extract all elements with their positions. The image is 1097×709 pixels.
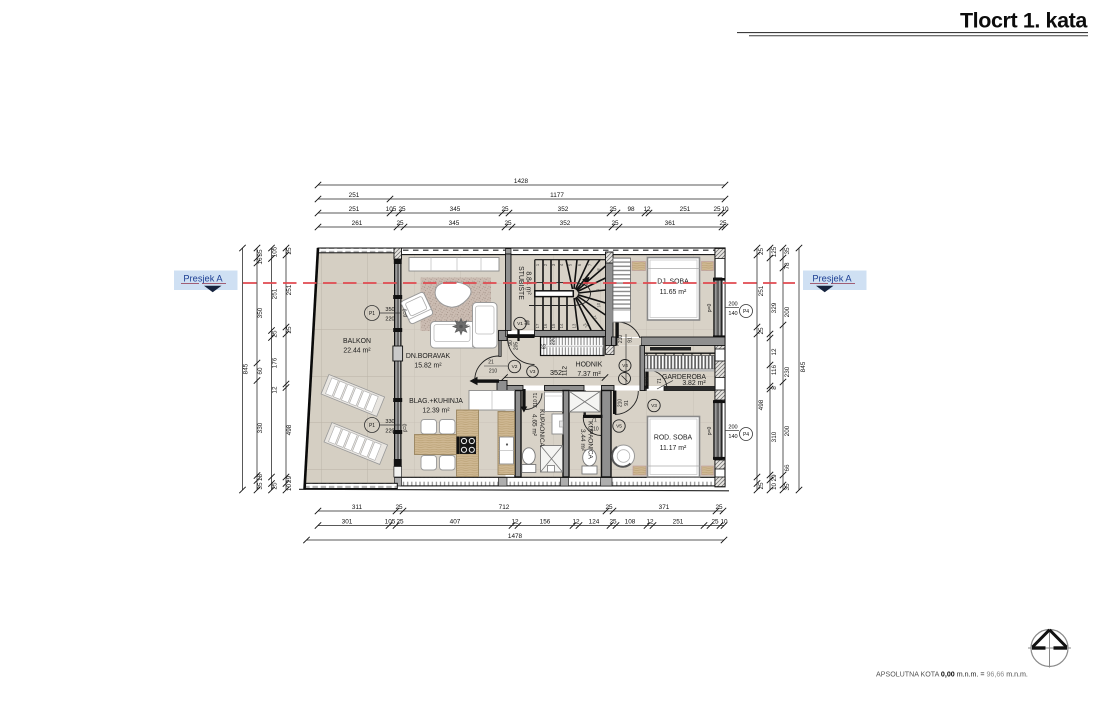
svg-text:108: 108 — [625, 519, 636, 526]
svg-text:p=0: p=0 — [707, 304, 713, 313]
svg-text:330: 330 — [385, 419, 394, 425]
svg-text:DN.BORAVAK: DN.BORAVAK — [406, 353, 451, 360]
svg-text:25: 25 — [395, 504, 403, 511]
svg-text:10: 10 — [721, 206, 729, 213]
svg-text:15.82 m²: 15.82 m² — [414, 363, 442, 370]
svg-text:25: 25 — [504, 220, 512, 227]
svg-text:352: 352 — [560, 220, 571, 227]
svg-text:17: 17 — [535, 323, 540, 328]
svg-text:205: 205 — [514, 342, 520, 351]
svg-text:25: 25 — [711, 519, 719, 526]
svg-text:16: 16 — [525, 320, 531, 326]
svg-text:125: 125 — [771, 246, 778, 257]
svg-text:200: 200 — [728, 425, 737, 431]
svg-text:12.39 m²: 12.39 m² — [422, 408, 450, 415]
svg-text:66: 66 — [784, 464, 791, 472]
svg-text:12: 12 — [572, 519, 580, 526]
svg-text:251: 251 — [286, 284, 293, 295]
svg-text:25: 25 — [396, 220, 404, 227]
svg-text:25: 25 — [605, 504, 613, 511]
svg-text:16: 16 — [543, 323, 548, 328]
svg-text:65: 65 — [542, 344, 548, 350]
svg-text:V1: V1 — [517, 321, 523, 327]
svg-text:p=0: p=0 — [403, 309, 409, 318]
svg-text:Presjek A: Presjek A — [183, 274, 223, 284]
svg-text:140: 140 — [728, 311, 737, 317]
svg-text:29: 29 — [771, 474, 778, 482]
svg-text:210: 210 — [618, 335, 624, 344]
svg-text:25: 25 — [758, 327, 765, 335]
svg-text:V4: V4 — [622, 363, 628, 369]
svg-text:HODNIK: HODNIK — [576, 362, 603, 369]
svg-text:11.17 m²: 11.17 m² — [660, 445, 687, 452]
svg-text:350: 350 — [385, 307, 394, 313]
svg-text:29: 29 — [286, 476, 293, 484]
svg-text:352: 352 — [550, 368, 562, 377]
svg-text:25: 25 — [609, 206, 617, 213]
svg-text:25: 25 — [272, 482, 279, 490]
svg-text:P4: P4 — [743, 432, 749, 438]
svg-text:BLAG.+KUHINJA: BLAG.+KUHINJA — [409, 398, 463, 405]
svg-text:10: 10 — [286, 484, 293, 492]
svg-text:230: 230 — [784, 366, 791, 377]
svg-text:498: 498 — [286, 424, 293, 435]
svg-text:200: 200 — [784, 306, 791, 317]
svg-text:p=0: p=0 — [707, 427, 713, 436]
svg-text:V3: V3 — [651, 403, 657, 409]
svg-text:21: 21 — [488, 360, 494, 366]
svg-text:35: 35 — [257, 249, 264, 257]
svg-text:25: 25 — [501, 206, 509, 213]
svg-text:116: 116 — [771, 364, 778, 375]
svg-text:APSOLUTNA KOTA 0,00 m.n.m. = 9: APSOLUTNA KOTA 0,00 m.n.m. = 96,66 m.n.m… — [876, 671, 1028, 679]
svg-text:361: 361 — [665, 220, 676, 227]
svg-text:12: 12 — [771, 348, 778, 356]
svg-text:78: 78 — [784, 262, 791, 270]
svg-text:156: 156 — [540, 519, 551, 526]
svg-text:301: 301 — [342, 519, 353, 526]
svg-text:p=0: p=0 — [403, 424, 409, 433]
svg-text:845: 845 — [800, 361, 807, 372]
svg-text:KUPAONICA: KUPAONICA — [587, 421, 594, 459]
svg-text:25: 25 — [286, 247, 293, 255]
svg-text:1478: 1478 — [508, 533, 523, 540]
svg-text:210: 210 — [618, 399, 624, 408]
svg-text:1428: 1428 — [514, 178, 529, 185]
svg-text:345: 345 — [449, 220, 460, 227]
svg-text:25: 25 — [611, 220, 619, 227]
svg-text:12: 12 — [643, 206, 651, 213]
svg-text:25: 25 — [713, 206, 721, 213]
svg-text:251: 251 — [673, 519, 684, 526]
svg-text:112: 112 — [562, 366, 569, 376]
svg-text:11.65 m²: 11.65 m² — [660, 289, 687, 296]
svg-text:124: 124 — [589, 519, 600, 526]
svg-text:251: 251 — [272, 288, 279, 299]
svg-text:105: 105 — [385, 519, 396, 526]
svg-text:210: 210 — [533, 399, 539, 408]
svg-text:25: 25 — [715, 504, 723, 511]
svg-text:10: 10 — [720, 519, 728, 526]
svg-text:15: 15 — [551, 323, 556, 328]
svg-text:200: 200 — [784, 425, 791, 436]
svg-text:498: 498 — [758, 399, 765, 410]
svg-text:12: 12 — [646, 519, 654, 526]
svg-text:105: 105 — [272, 246, 279, 257]
svg-text:25: 25 — [398, 206, 406, 213]
svg-text:3.44 m²: 3.44 m² — [579, 429, 586, 452]
svg-text:13: 13 — [572, 323, 577, 328]
svg-text:310: 310 — [771, 431, 778, 442]
svg-text:16: 16 — [257, 257, 264, 265]
svg-text:71: 71 — [533, 393, 539, 399]
svg-text:Presjek A: Presjek A — [812, 274, 852, 284]
svg-text:210: 210 — [644, 377, 650, 386]
svg-text:350: 350 — [257, 307, 264, 318]
svg-text:12: 12 — [511, 519, 519, 526]
svg-text:98: 98 — [627, 206, 635, 213]
svg-text:25: 25 — [396, 519, 404, 526]
svg-text:22.44 m²: 22.44 m² — [343, 348, 371, 355]
svg-text:845: 845 — [243, 363, 250, 374]
svg-text:12: 12 — [272, 386, 279, 394]
svg-text:176: 176 — [272, 357, 279, 368]
svg-text:220: 220 — [551, 337, 557, 346]
svg-text:V3: V3 — [530, 369, 536, 375]
svg-text:P1: P1 — [369, 311, 375, 317]
svg-text:200: 200 — [728, 302, 737, 308]
svg-text:712: 712 — [499, 504, 510, 511]
svg-text:60: 60 — [257, 367, 264, 375]
svg-text:25: 25 — [286, 326, 293, 334]
svg-text:1177: 1177 — [550, 192, 564, 199]
svg-text:P4: P4 — [743, 309, 749, 315]
svg-text:V5: V5 — [616, 424, 622, 430]
svg-text:25: 25 — [719, 220, 727, 227]
svg-text:220: 220 — [385, 429, 394, 435]
svg-text:DJ. SOBA: DJ. SOBA — [657, 279, 689, 286]
svg-text:140: 140 — [728, 434, 737, 440]
svg-text:261: 261 — [352, 220, 363, 227]
svg-text:210: 210 — [489, 369, 498, 375]
svg-text:35: 35 — [257, 482, 264, 490]
svg-text:25: 25 — [272, 330, 279, 338]
svg-text:BALKON: BALKON — [343, 338, 371, 345]
svg-text:251: 251 — [758, 285, 765, 296]
svg-text:251: 251 — [349, 206, 360, 213]
svg-text:25: 25 — [758, 248, 765, 256]
svg-text:4.65 m²: 4.65 m² — [531, 414, 538, 437]
svg-text:25: 25 — [609, 519, 617, 526]
svg-text:251: 251 — [349, 192, 360, 199]
svg-text:Tlocrt 1. kata: Tlocrt 1. kata — [960, 9, 1088, 33]
svg-text:10: 10 — [771, 483, 778, 491]
svg-text:91: 91 — [624, 400, 630, 406]
svg-text:251: 251 — [680, 206, 691, 213]
svg-text:345: 345 — [450, 206, 461, 213]
svg-text:35: 35 — [784, 483, 791, 491]
svg-text:35: 35 — [784, 247, 791, 255]
svg-text:91: 91 — [628, 337, 634, 343]
svg-text:18: 18 — [257, 474, 264, 482]
svg-text:V2: V2 — [512, 364, 518, 370]
svg-text:KUPAONICA: KUPAONICA — [538, 409, 545, 447]
svg-text:ROD. SOBA: ROD. SOBA — [654, 435, 693, 442]
svg-text:25: 25 — [758, 482, 765, 490]
svg-text:329: 329 — [771, 302, 778, 313]
svg-text:220: 220 — [385, 317, 394, 323]
svg-text:14: 14 — [559, 323, 564, 328]
svg-text:P1: P1 — [369, 423, 375, 429]
svg-text:8: 8 — [771, 386, 778, 390]
svg-text:371: 371 — [659, 504, 670, 511]
svg-text:407: 407 — [450, 519, 461, 526]
svg-text:71: 71 — [657, 378, 663, 384]
svg-text:3.82 m²: 3.82 m² — [682, 380, 706, 387]
svg-text:352: 352 — [558, 206, 569, 213]
svg-text:330: 330 — [257, 422, 264, 433]
svg-text:311: 311 — [352, 504, 363, 511]
svg-text:105: 105 — [386, 206, 397, 213]
svg-text:7.37 m²: 7.37 m² — [577, 371, 601, 378]
